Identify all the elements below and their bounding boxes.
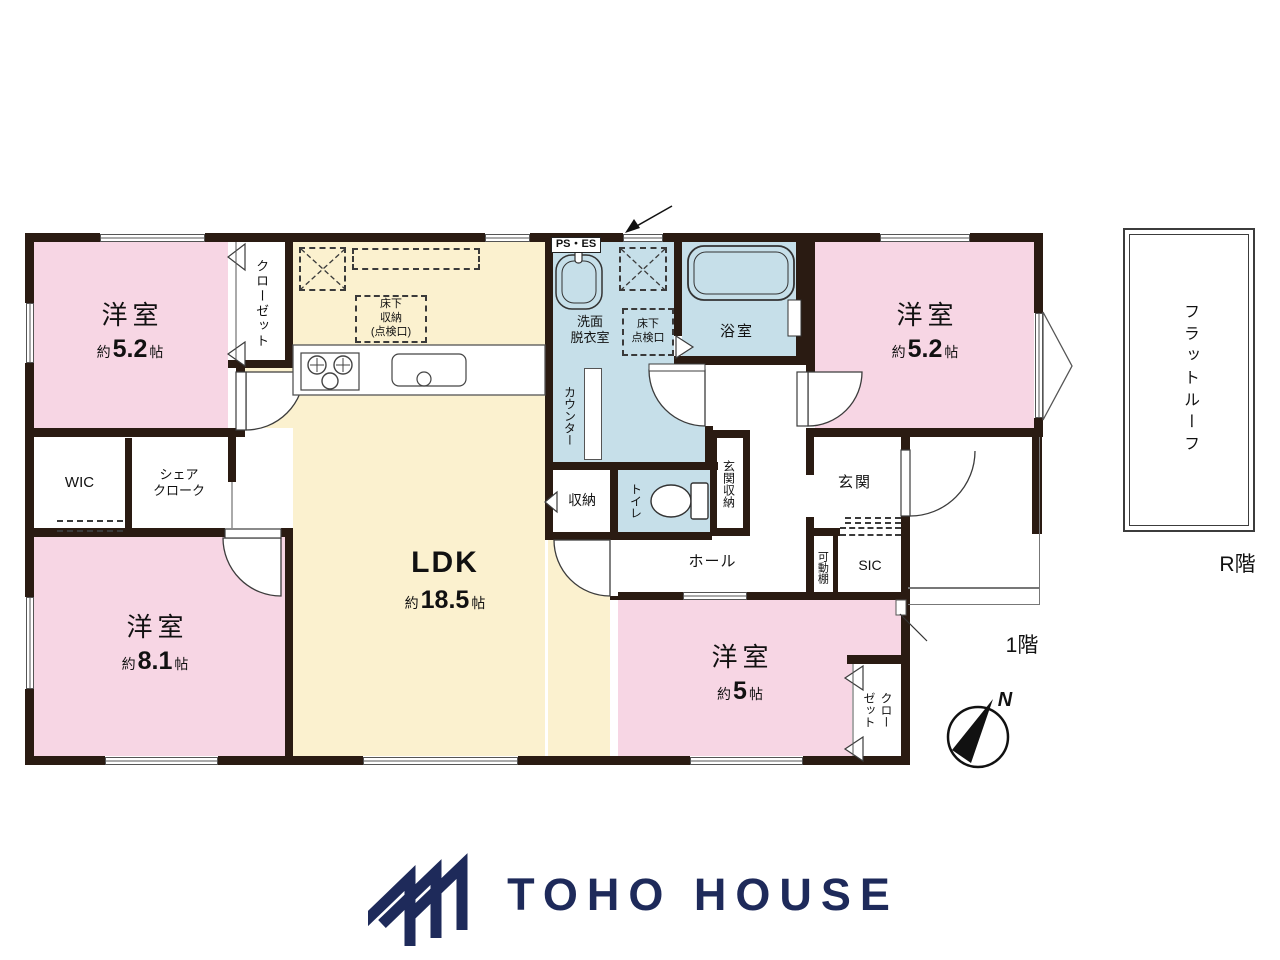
toilet-label: トイレ (627, 472, 643, 530)
counter-label: カウンター (561, 370, 577, 462)
room-bedroom-top-right: 洋室 約5.2帖 (835, 296, 1015, 368)
first-floor-label: 1階 (998, 633, 1046, 659)
share-cloak-label: シェア クローク (130, 462, 228, 504)
ps-es-label: PS・ES (551, 237, 601, 253)
labels: 洋室 約5.2帖 洋室 約5.2帖 洋室 約8.1帖 洋室 約5帖 LDK 約1… (0, 0, 1280, 960)
entrance-storage-label: 玄関収納 (720, 440, 736, 528)
roof-floor-label: R階 (1210, 552, 1265, 578)
brand-name: TOHO HOUSE (488, 868, 918, 922)
closet-top-left-label: クローゼット (249, 248, 273, 360)
storage-label: 収納 (553, 489, 611, 513)
closet-bottom-right-label: クロー ゼット (858, 670, 896, 750)
toho-house-logo-icon (368, 852, 478, 952)
room-name: LDK (411, 544, 479, 582)
room-name: 洋室 (891, 299, 958, 332)
room-bedroom-top-left: 洋室 約5.2帖 (40, 296, 220, 368)
hall-label: ホール (660, 550, 765, 574)
movable-shelf-label: 可動棚 (814, 539, 829, 596)
entrance-label: 玄関 (820, 470, 890, 496)
room-name: 洋室 (706, 641, 773, 674)
room-bedroom-bottom-left: 洋室 約8.1帖 (65, 608, 245, 680)
room-ldk: LDK 約18.5帖 (355, 540, 535, 620)
sic-label: SIC (840, 554, 900, 578)
room-name: 洋室 (121, 611, 188, 644)
washroom-label: 洗面 脱衣室 (551, 308, 629, 352)
room-bedroom-bottom-center: 洋室 約5帖 (650, 638, 830, 710)
wic-label: WIC (34, 468, 125, 498)
floor-plan-page: 床下 収納 (点検口) 床下 点検口 フラットルーフ 洋室 約5.2帖 洋室 約… (0, 0, 1280, 960)
compass-north-label: N (990, 688, 1020, 712)
room-name: 洋室 (96, 299, 163, 332)
bathroom-label: 浴室 (706, 320, 768, 344)
